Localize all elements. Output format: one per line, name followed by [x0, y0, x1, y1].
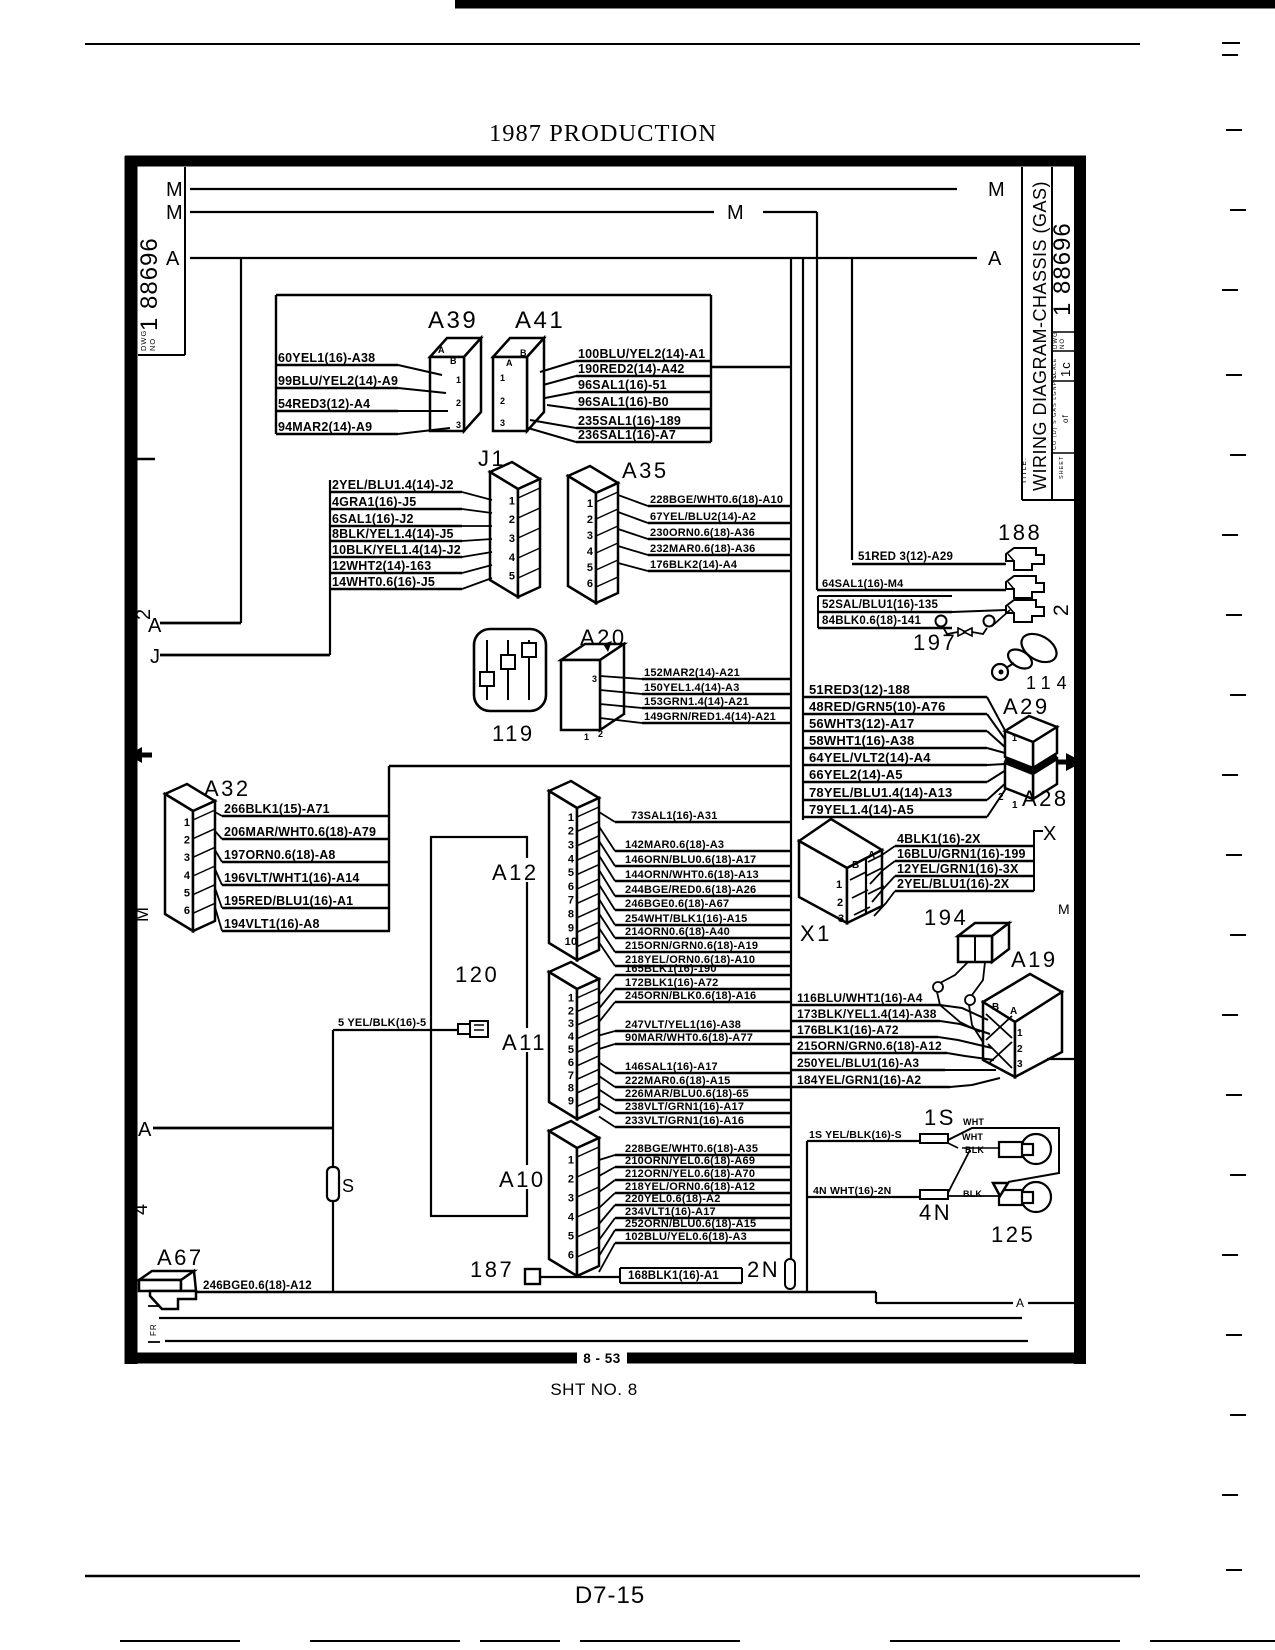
svg-text:206MAR/WHT0.6(18)-A79: 206MAR/WHT0.6(18)-A79	[224, 825, 376, 839]
svg-text:6: 6	[568, 881, 574, 893]
svg-text:A29: A29	[1003, 694, 1050, 719]
svg-text:73SAL1(16)-A31: 73SAL1(16)-A31	[631, 810, 718, 822]
svg-text:2: 2	[1050, 603, 1073, 616]
svg-text:6: 6	[568, 1250, 574, 1262]
svg-text:66YEL2(14)-A5: 66YEL2(14)-A5	[809, 767, 903, 782]
svg-text:146SAL1(16)-A17: 146SAL1(16)-A17	[625, 1061, 718, 1073]
svg-text:194VLT1(16)-A8: 194VLT1(16)-A8	[224, 917, 320, 931]
svg-text:B: B	[520, 348, 527, 358]
svg-text:FR: FR	[149, 1323, 158, 1336]
svg-text:of: of	[1061, 414, 1070, 423]
svg-text:2: 2	[509, 514, 515, 526]
svg-text:4: 4	[568, 853, 575, 865]
svg-text:B: B	[992, 1002, 999, 1013]
svg-text:234VLT1(16)-A17: 234VLT1(16)-A17	[625, 1206, 716, 1218]
svg-text:100BLU/YEL2(14)-A1: 100BLU/YEL2(14)-A1	[578, 347, 705, 361]
svg-text:218YEL/ORN0.6(18)-A12: 218YEL/ORN0.6(18)-A12	[625, 1181, 755, 1193]
svg-text:1: 1	[568, 812, 574, 824]
svg-text:51RED3(12)-188: 51RED3(12)-188	[809, 682, 910, 697]
svg-text:X: X	[1043, 823, 1057, 845]
svg-text:125: 125	[991, 1222, 1035, 1247]
svg-text:WIRING DIAGRAM-CHASSIS (GAS): WIRING DIAGRAM-CHASSIS (GAS)	[1030, 181, 1050, 491]
svg-text:222MAR0.6(18)-A15: 222MAR0.6(18)-A15	[625, 1075, 731, 1087]
svg-text:212ORN/YEL0.6(18)-A70: 212ORN/YEL0.6(18)-A70	[625, 1168, 755, 1180]
svg-text:A: A	[1016, 1296, 1024, 1310]
svg-text:60YEL1(16)-A38: 60YEL1(16)-A38	[278, 351, 375, 365]
svg-text:173BLK/YEL1.4(14)-A38: 173BLK/YEL1.4(14)-A38	[797, 1007, 937, 1021]
svg-text:A: A	[506, 358, 513, 368]
svg-text:1: 1	[568, 992, 574, 1004]
svg-text:184YEL/GRN1(16)-A2: 184YEL/GRN1(16)-A2	[797, 1073, 921, 1087]
svg-text:84BLK0.6(18)-141: 84BLK0.6(18)-141	[822, 615, 921, 627]
svg-text:51RED 3(12)-A29: 51RED 3(12)-A29	[858, 551, 953, 563]
svg-text:246BGE0.6(18)-A67: 246BGE0.6(18)-A67	[625, 898, 729, 910]
svg-text:247VLT/YEL1(16)-A38: 247VLT/YEL1(16)-A38	[625, 1019, 741, 1031]
svg-text:3: 3	[587, 530, 593, 542]
svg-text:A19: A19	[1011, 947, 1058, 972]
svg-text:1: 1	[568, 1155, 574, 1167]
svg-text:16BLU/GRN1(16)-199: 16BLU/GRN1(16)-199	[897, 847, 1026, 861]
svg-text:6: 6	[587, 578, 593, 590]
svg-text:DWG: DWG	[1053, 331, 1059, 349]
svg-text:252ORN/BLU0.6(18)-A15: 252ORN/BLU0.6(18)-A15	[625, 1218, 756, 1230]
svg-text:246BGE0.6(18)-A12: 246BGE0.6(18)-A12	[203, 1280, 312, 1292]
svg-text:2: 2	[500, 396, 505, 406]
svg-text:4N WHT(16)-2N: 4N WHT(16)-2N	[813, 1185, 891, 1197]
svg-text:4: 4	[130, 1203, 152, 1215]
svg-text:244BGE/RED0.6(18)-A26: 244BGE/RED0.6(18)-A26	[625, 884, 756, 896]
svg-text:4: 4	[568, 1212, 575, 1224]
svg-text:58WHT1(16)-A38: 58WHT1(16)-A38	[809, 733, 914, 748]
svg-text:188: 188	[998, 520, 1042, 545]
svg-text:196VLT/WHT1(16)-A14: 196VLT/WHT1(16)-A14	[224, 871, 360, 885]
svg-text:165BLK1(16)-190: 165BLK1(16)-190	[625, 963, 717, 975]
svg-text:B: B	[450, 356, 457, 366]
svg-text:1: 1	[1017, 1028, 1023, 1039]
svg-text:5: 5	[568, 867, 574, 879]
svg-text:5: 5	[568, 1044, 574, 1056]
svg-text:215ORN/GRN0.6(18)-A19: 215ORN/GRN0.6(18)-A19	[625, 940, 758, 952]
svg-text:8: 8	[568, 1083, 574, 1095]
svg-text:5: 5	[509, 571, 515, 583]
svg-text:CO (D) S GAS LGNP-D: CO (D) S GAS LGNP-D	[1052, 373, 1058, 450]
svg-text:A67: A67	[157, 1245, 204, 1270]
svg-text:2: 2	[568, 1005, 574, 1017]
svg-text:3: 3	[184, 852, 190, 864]
svg-text:7: 7	[568, 895, 574, 907]
svg-text:5 YEL/BLK(16)-5: 5 YEL/BLK(16)-5	[338, 1017, 426, 1029]
svg-text:4N: 4N	[919, 1200, 952, 1225]
svg-text:2YEL/BLU1(16)-2X: 2YEL/BLU1(16)-2X	[897, 877, 1010, 891]
svg-text:TITLE:: TITLE:	[1021, 457, 1028, 484]
svg-text:254WHT/BLK1(16)-A15: 254WHT/BLK1(16)-A15	[625, 913, 747, 925]
svg-text:90MAR/WHT0.6(18)-A77: 90MAR/WHT0.6(18)-A77	[625, 1032, 753, 1044]
svg-text:1: 1	[587, 498, 593, 510]
svg-text:1: 1	[456, 375, 461, 385]
svg-text:99BLU/YEL2(14)-A9: 99BLU/YEL2(14)-A9	[278, 374, 398, 388]
svg-text:A28: A28	[1022, 786, 1069, 811]
svg-text:6SAL1(16)-J2: 6SAL1(16)-J2	[332, 512, 414, 526]
svg-text:5: 5	[184, 888, 190, 900]
svg-text:78YEL/BLU1.4(14)-A13: 78YEL/BLU1.4(14)-A13	[809, 785, 952, 800]
svg-text:3: 3	[838, 913, 844, 925]
svg-text:1: 1	[184, 817, 190, 829]
svg-text:149GRN/RED1.4(14)-A21: 149GRN/RED1.4(14)-A21	[644, 711, 776, 723]
svg-text:A41: A41	[515, 307, 565, 334]
svg-text:79YEL1.4(14)-A5: 79YEL1.4(14)-A5	[809, 802, 914, 817]
svg-text:M: M	[132, 906, 152, 922]
svg-text:3: 3	[568, 1193, 574, 1205]
svg-text:116BLU/WHT1(16)-A4: 116BLU/WHT1(16)-A4	[797, 991, 923, 1005]
svg-text:B: B	[852, 860, 859, 871]
svg-text:10BLK/YEL1.4(14)-J2: 10BLK/YEL1.4(14)-J2	[332, 543, 461, 557]
svg-text:150YEL1.4(14)-A3: 150YEL1.4(14)-A3	[644, 682, 740, 694]
svg-text:A: A	[988, 248, 1002, 270]
svg-text:4: 4	[568, 1031, 575, 1043]
svg-text:172BLK1(16)-A72: 172BLK1(16)-A72	[625, 977, 718, 989]
svg-text:M: M	[727, 202, 744, 224]
svg-text:194: 194	[924, 905, 968, 930]
svg-text:54RED3(12)-A4: 54RED3(12)-A4	[278, 397, 370, 411]
svg-text:4: 4	[587, 546, 594, 558]
svg-text:A: A	[438, 345, 445, 355]
svg-text:1 88696: 1 88696	[1049, 222, 1076, 316]
svg-text:SHEET: SHEET	[1059, 456, 1065, 479]
svg-text:232MAR0.6(18)-A36: 232MAR0.6(18)-A36	[650, 543, 756, 555]
svg-text:X1: X1	[800, 921, 832, 946]
svg-text:2N: 2N	[747, 1257, 780, 1282]
svg-text:A: A	[166, 248, 180, 270]
svg-text:238VLT/GRN1(16)-A17: 238VLT/GRN1(16)-A17	[625, 1101, 744, 1113]
svg-text:WHT: WHT	[962, 1132, 983, 1142]
svg-text:NO: NO	[148, 338, 157, 351]
svg-text:1: 1	[500, 373, 505, 383]
svg-text:197ORN0.6(18)-A8: 197ORN0.6(18)-A8	[224, 848, 336, 862]
svg-text:236SAL1(16)-A7: 236SAL1(16)-A7	[578, 428, 676, 442]
svg-text:A: A	[138, 1119, 152, 1141]
svg-text:1: 1	[1012, 800, 1018, 811]
svg-text:6: 6	[568, 1057, 574, 1069]
svg-text:102BLU/YEL0.6(18)-A3: 102BLU/YEL0.6(18)-A3	[625, 1231, 747, 1243]
svg-text:A: A	[1010, 1006, 1017, 1017]
svg-text:52SAL/BLU1(16)-135: 52SAL/BLU1(16)-135	[822, 599, 938, 611]
svg-text:2: 2	[998, 792, 1004, 803]
svg-text:114: 114	[1026, 673, 1073, 693]
svg-text:5: 5	[587, 562, 593, 574]
svg-text:187: 187	[470, 1257, 514, 1282]
svg-text:A12: A12	[492, 860, 539, 885]
svg-text:6: 6	[184, 905, 190, 917]
svg-text:3: 3	[592, 674, 597, 684]
svg-text:144ORN/WHT0.6(18)-A13: 144ORN/WHT0.6(18)-A13	[625, 869, 759, 881]
svg-text:146ORN/BLU0.6(18)-A17: 146ORN/BLU0.6(18)-A17	[625, 854, 756, 866]
svg-text:153GRN1.4(14)-A21: 153GRN1.4(14)-A21	[644, 696, 749, 708]
svg-text:142MAR0.6(18)-A3: 142MAR0.6(18)-A3	[625, 839, 724, 851]
svg-text:2: 2	[568, 826, 574, 838]
svg-text:220YEL0.6(18)-A2: 220YEL0.6(18)-A2	[625, 1193, 721, 1205]
svg-text:1S: 1S	[924, 1105, 956, 1130]
svg-text:M: M	[166, 179, 183, 201]
svg-text:4GRA1(16)-J5: 4GRA1(16)-J5	[332, 495, 416, 509]
svg-text:226MAR/BLU0.6(18)-65: 226MAR/BLU0.6(18)-65	[625, 1088, 749, 1100]
svg-text:176BLK1(16)-A72: 176BLK1(16)-A72	[797, 1023, 899, 1037]
svg-text:12YEL/GRN1(16)-3X: 12YEL/GRN1(16)-3X	[897, 862, 1019, 876]
svg-text:2: 2	[456, 398, 461, 408]
svg-text:A35: A35	[622, 458, 669, 483]
svg-text:119: 119	[492, 721, 535, 746]
svg-text:4: 4	[184, 870, 191, 882]
svg-text:1 88696: 1 88696	[136, 237, 163, 331]
svg-text:14WHT0.6(16)-J5: 14WHT0.6(16)-J5	[332, 575, 435, 589]
svg-text:J: J	[150, 646, 160, 668]
svg-text:67YEL/BLU2(14)-A2: 67YEL/BLU2(14)-A2	[650, 511, 756, 523]
svg-text:M: M	[166, 202, 183, 224]
svg-text:1S YEL/BLK(16)-S: 1S YEL/BLK(16)-S	[809, 1129, 902, 1141]
svg-text:120: 120	[455, 962, 499, 987]
svg-text:3: 3	[509, 533, 515, 545]
svg-text:152MAR2(14)-A21: 152MAR2(14)-A21	[644, 667, 740, 679]
svg-text:SHT NO. 8: SHT NO. 8	[550, 1380, 637, 1399]
svg-text:M: M	[1058, 901, 1070, 917]
svg-text:266BLK1(15)-A71: 266BLK1(15)-A71	[224, 802, 330, 816]
svg-text:2: 2	[1017, 1044, 1023, 1055]
svg-text:233VLT/GRN1(16)-A16: 233VLT/GRN1(16)-A16	[625, 1115, 744, 1127]
svg-text:9: 9	[568, 922, 574, 934]
svg-text:1: 1	[1012, 733, 1017, 743]
svg-text:94MAR2(14)-A9: 94MAR2(14)-A9	[278, 420, 372, 434]
svg-text:3: 3	[500, 418, 505, 428]
svg-text:64SAL1(16)-M4: 64SAL1(16)-M4	[822, 578, 904, 590]
svg-text:230ORN0.6(18)-A36: 230ORN0.6(18)-A36	[650, 527, 755, 539]
svg-text:3: 3	[568, 1018, 574, 1030]
svg-text:NO: NO	[1060, 338, 1066, 349]
svg-text:2: 2	[133, 608, 155, 620]
svg-text:M: M	[988, 179, 1005, 201]
svg-text:5: 5	[568, 1231, 574, 1243]
svg-text:8: 8	[568, 909, 574, 921]
svg-text:214ORN0.6(18)-A40: 214ORN0.6(18)-A40	[625, 926, 730, 938]
svg-text:3: 3	[1017, 1059, 1023, 1070]
svg-text:2: 2	[568, 1174, 574, 1186]
svg-text:235SAL1(16)-189: 235SAL1(16)-189	[578, 414, 681, 428]
svg-text:8 - 53: 8 - 53	[583, 1351, 621, 1366]
svg-text:96SAL1(16)-B0: 96SAL1(16)-B0	[578, 395, 669, 409]
svg-text:197: 197	[913, 630, 957, 655]
svg-text:10: 10	[565, 936, 578, 948]
svg-text:8BLK/YEL1.4(14)-J5: 8BLK/YEL1.4(14)-J5	[332, 527, 454, 541]
svg-text:A39: A39	[428, 307, 478, 334]
svg-text:9: 9	[568, 1096, 574, 1108]
svg-text:96SAL1(16)-51: 96SAL1(16)-51	[578, 378, 667, 392]
svg-text:2: 2	[837, 897, 843, 909]
svg-text:48RED/GRN5(10)-A76: 48RED/GRN5(10)-A76	[809, 699, 946, 714]
svg-text:210ORN/YEL0.6(18)-A69: 210ORN/YEL0.6(18)-A69	[625, 1155, 755, 1167]
svg-text:176BLK2(14)-A4: 176BLK2(14)-A4	[650, 559, 738, 571]
svg-text:168BLK1(16)-A1: 168BLK1(16)-A1	[628, 1270, 719, 1282]
svg-text:64YEL/VLT2(14)-A4: 64YEL/VLT2(14)-A4	[809, 750, 931, 765]
svg-text:215ORN/GRN0.6(18)-A12: 215ORN/GRN0.6(18)-A12	[797, 1039, 942, 1053]
svg-text:BLK: BLK	[963, 1189, 982, 1199]
svg-text:7: 7	[568, 1070, 574, 1082]
svg-text:1: 1	[836, 879, 842, 891]
svg-text:12WHT2(14)-163: 12WHT2(14)-163	[332, 559, 431, 573]
svg-text:D7-15: D7-15	[575, 1582, 645, 1609]
svg-text:245ORN/BLK0.6(18)-A16: 245ORN/BLK0.6(18)-A16	[625, 990, 756, 1002]
svg-text:4: 4	[509, 552, 516, 564]
svg-text:A11: A11	[502, 1030, 547, 1055]
svg-text:1c: 1c	[1058, 361, 1073, 377]
svg-text:2: 2	[184, 835, 190, 847]
svg-text:4BLK1(16)-2X: 4BLK1(16)-2X	[897, 832, 981, 846]
svg-text:195RED/BLU1(16)-A1: 195RED/BLU1(16)-A1	[224, 894, 353, 908]
svg-text:1: 1	[509, 495, 515, 507]
svg-text:228BGE/WHT0.6(18)-A10: 228BGE/WHT0.6(18)-A10	[650, 494, 783, 506]
svg-text:190RED2(14)-A42: 190RED2(14)-A42	[578, 362, 685, 376]
svg-text:228BGE/WHT0.6(18)-A35: 228BGE/WHT0.6(18)-A35	[625, 1143, 758, 1155]
svg-text:1: 1	[584, 732, 589, 742]
svg-text:250YEL/BLU1(16)-A3: 250YEL/BLU1(16)-A3	[797, 1056, 919, 1070]
svg-text:2: 2	[598, 729, 603, 739]
svg-text:2: 2	[587, 514, 593, 526]
svg-text:2YEL/BLU1.4(14)-J2: 2YEL/BLU1.4(14)-J2	[332, 478, 454, 492]
svg-text:3: 3	[568, 840, 574, 852]
svg-text:WHT: WHT	[963, 1117, 984, 1127]
svg-text:S: S	[342, 1176, 354, 1196]
svg-text:1987 PRODUCTION: 1987 PRODUCTION	[489, 120, 717, 147]
svg-text:56WHT3(12)-A17: 56WHT3(12)-A17	[809, 716, 914, 731]
svg-text:A10: A10	[499, 1167, 546, 1192]
svg-text:3: 3	[456, 420, 461, 430]
svg-text:DWG: DWG	[139, 330, 148, 351]
